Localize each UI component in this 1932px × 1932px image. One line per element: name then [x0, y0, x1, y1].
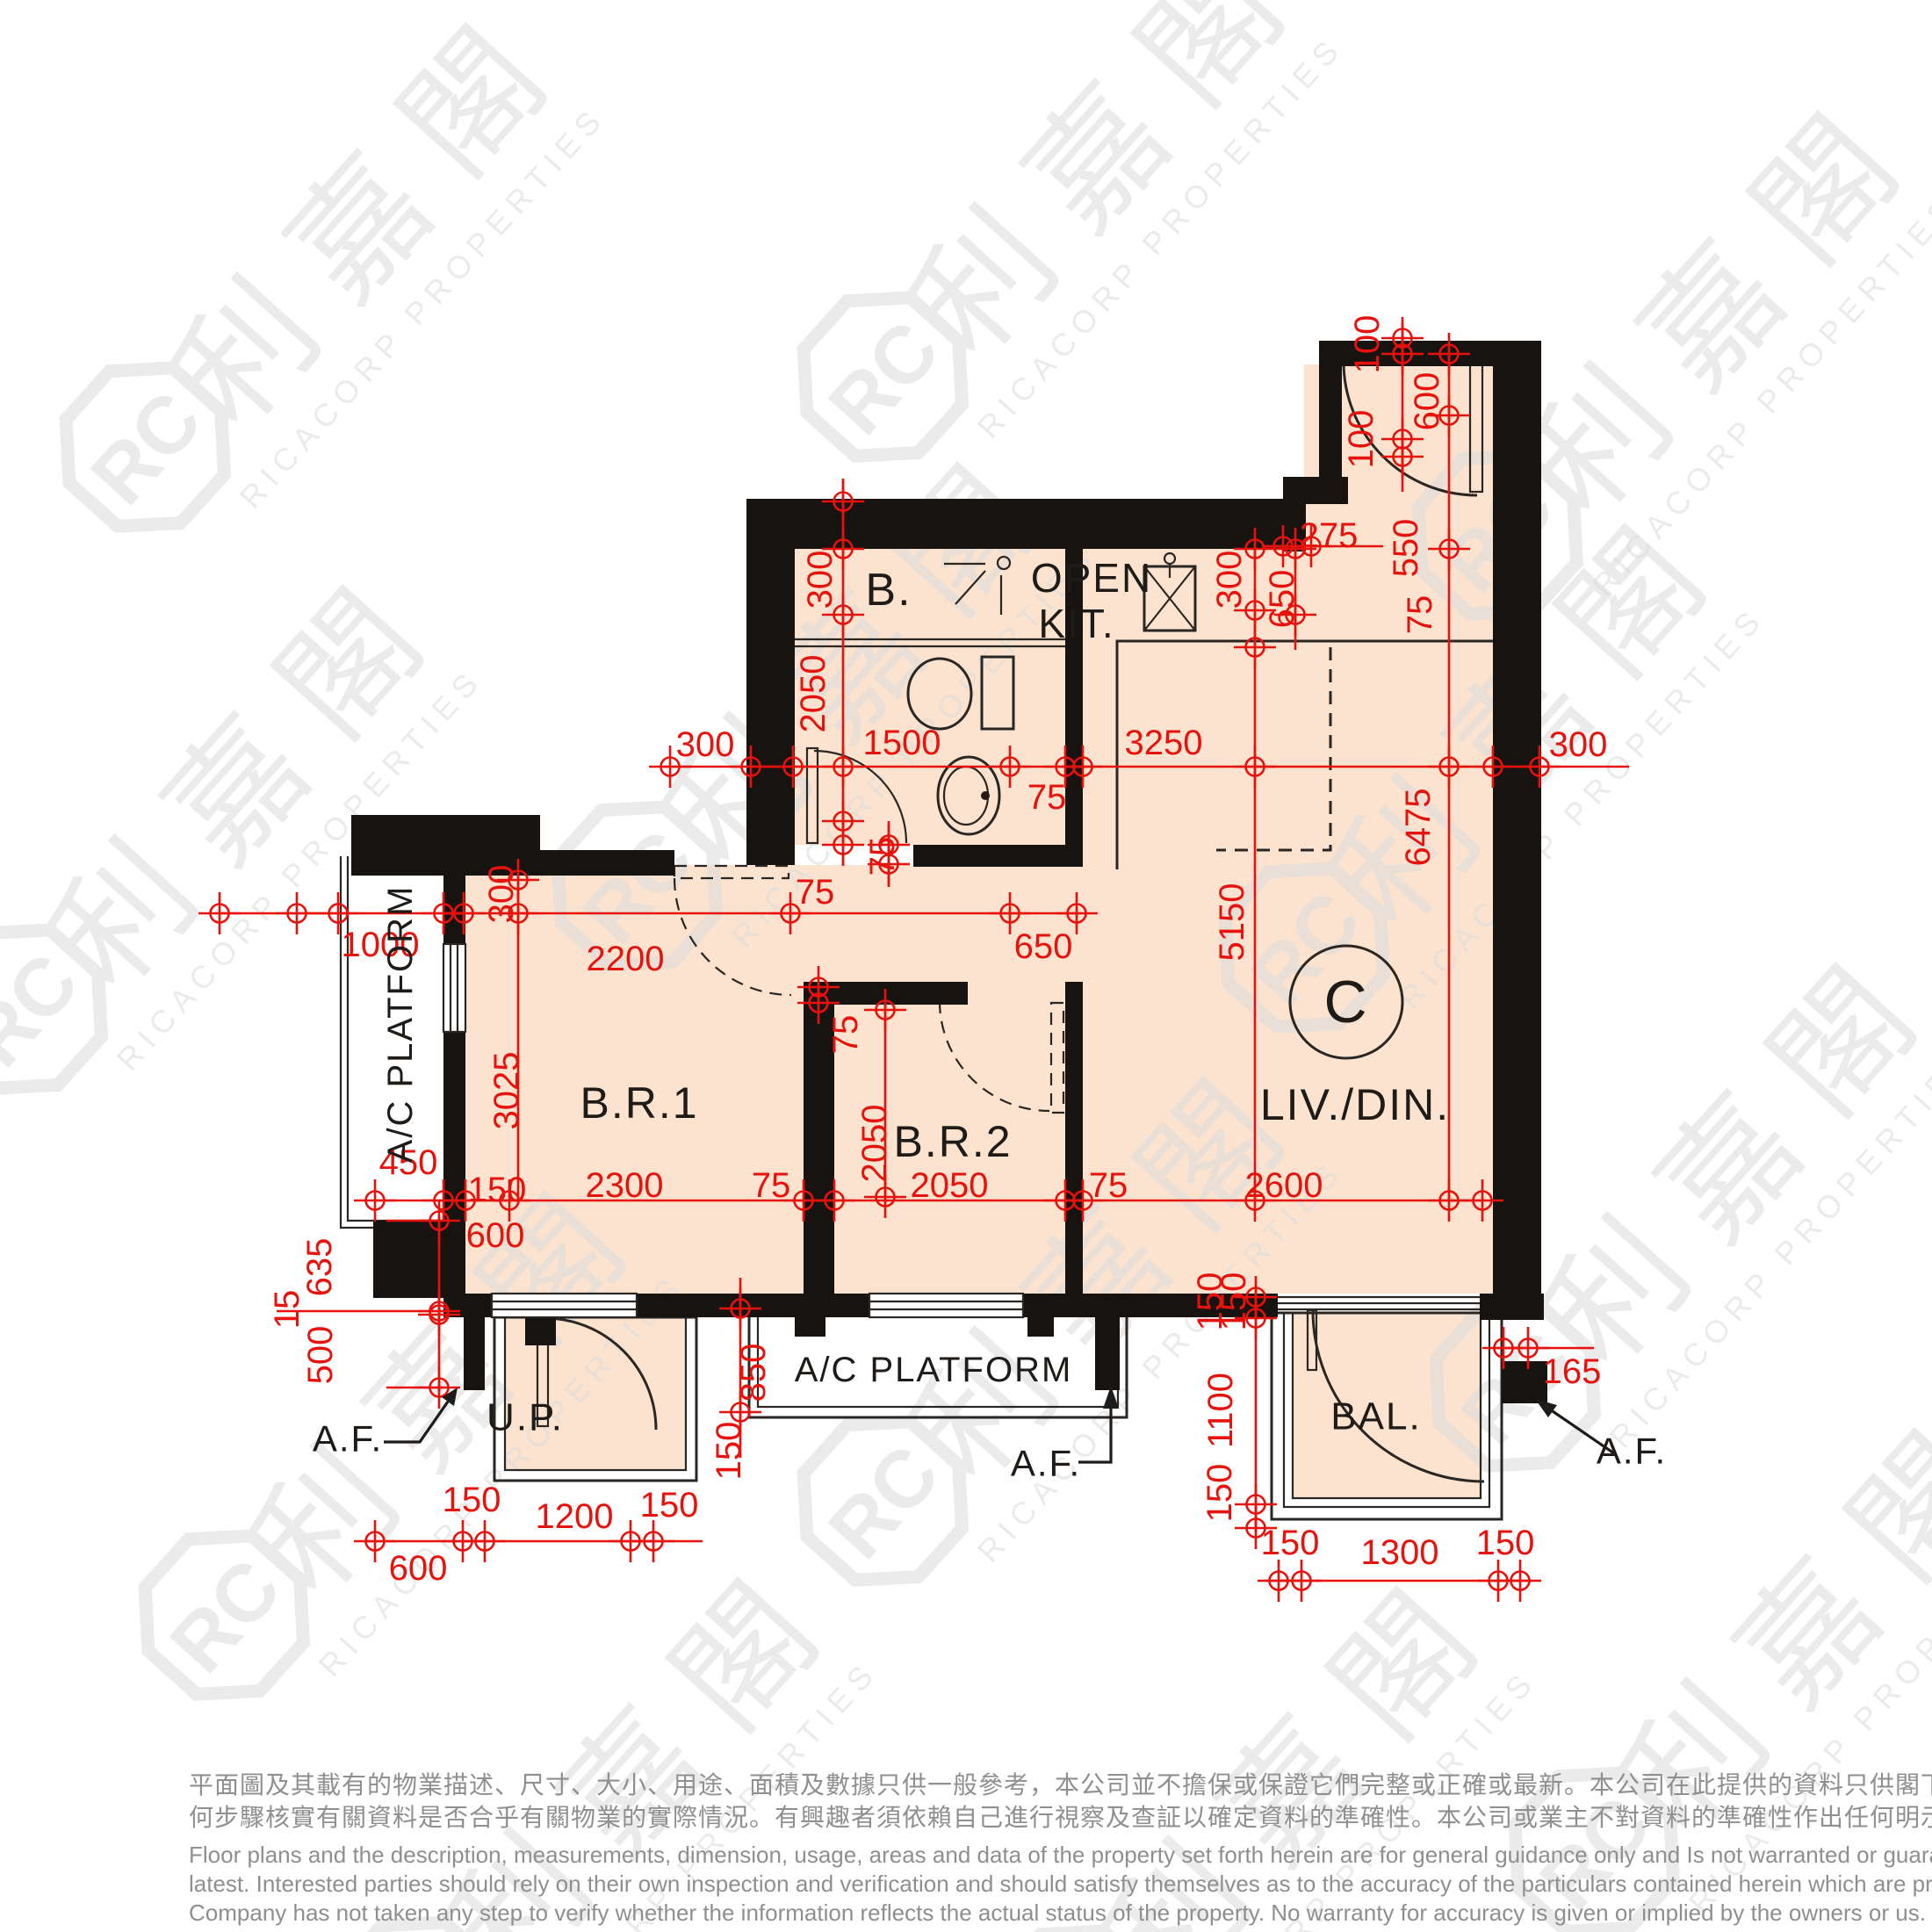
dimension-label: 75: [752, 1166, 791, 1205]
dimension-label: 650: [1263, 570, 1301, 629]
wall: [637, 1294, 869, 1317]
floor-plan-canvas: RC 利嘉閣 RICACORP PROPERTIES RC 利嘉閣 RICACO…: [0, 0, 1932, 1932]
dimension-label: 150: [710, 1422, 748, 1481]
dimension-label: 2300: [586, 1166, 664, 1205]
dimension-label: 550: [1387, 519, 1425, 578]
dimension-label: 75: [796, 873, 835, 912]
window-bedroom-1-side: [443, 944, 465, 1032]
wall: [913, 845, 1083, 867]
wall: [1065, 982, 1083, 1294]
wall-af-fin-right: [1502, 1361, 1547, 1403]
room-label-balcony: BAL.: [1330, 1395, 1421, 1438]
dimension-label: 150: [468, 1171, 527, 1209]
wall: [746, 499, 1283, 549]
disclaimer-en-line2: latest. Interested parties should rely o…: [189, 1871, 1932, 1897]
dimension-label: 150: [443, 1481, 501, 1519]
balcony-sill-lines: [1278, 1297, 1484, 1309]
room-label-bedroom-2: B.R.2: [893, 1117, 1012, 1166]
dimension-label: 3250: [1125, 724, 1203, 762]
dimension-label: 5150: [1213, 883, 1251, 962]
dimension-label: 2050: [855, 1105, 894, 1183]
dimension-label: 75: [826, 1015, 865, 1055]
wall: [1493, 341, 1541, 1304]
dimension-label: 6475: [1399, 789, 1438, 867]
wall-pier: [1027, 1294, 1054, 1337]
wall: [834, 982, 968, 1005]
dimension-label: 275: [1300, 516, 1359, 555]
dimension-label: 600: [1408, 372, 1446, 431]
dimension-label: 150: [640, 1486, 699, 1525]
dimension-label: 3025: [487, 1052, 526, 1130]
dimension-label: 2600: [1245, 1166, 1323, 1205]
wall: [746, 499, 795, 865]
dimension-label: 600: [466, 1216, 525, 1255]
room-label-open-kitchen-2: KIT.: [1038, 601, 1114, 646]
dimension-label: 15: [268, 1290, 306, 1330]
room-label-ac-platform-bottom: A/C PLATFORM: [795, 1351, 1073, 1389]
annotation-af-middle: A.F.: [1011, 1443, 1081, 1484]
dimension-label: 650: [1014, 927, 1073, 966]
disclaimer: 平面圖及其載有的物業描述、尺寸、大小、用途、面積及數據只供一般參考，本公司並不擔…: [189, 1771, 1932, 1926]
disclaimer-en-line3: Company has not taken any step to verify…: [189, 1900, 1926, 1926]
room-label-bathroom: B.: [865, 565, 912, 616]
dimension-label: 300: [482, 865, 521, 924]
dimension-label: 150: [1215, 1272, 1253, 1331]
dimension-label: 300: [1210, 551, 1249, 609]
dimension-label: 100: [1348, 315, 1387, 374]
dimension-label: 150: [1476, 1524, 1535, 1562]
wall: [1480, 1294, 1544, 1320]
dimension-label: 300: [801, 551, 840, 609]
annotation-af-right: A.F.: [1597, 1431, 1667, 1472]
dimension-label: 600: [389, 1549, 448, 1588]
dimension-label: 850: [734, 1344, 773, 1402]
window-bedroom-2: [869, 1294, 1023, 1317]
watermark-cjk-text: 利嘉閣: [886, 0, 1334, 381]
room-label-bedroom-1: B.R.1: [580, 1078, 698, 1128]
dimension-label: 300: [676, 725, 735, 764]
dimension-label: 100: [1342, 410, 1381, 469]
dimension-label: 75: [863, 837, 902, 876]
wall-af-fin-middle: [1095, 1298, 1120, 1390]
dimension-label: 2050: [911, 1166, 989, 1205]
disclaimer-en-line1: Floor plans and the description, measure…: [189, 1842, 1932, 1868]
dimension-label: 1300: [1361, 1533, 1439, 1572]
dimension-label: 1500: [863, 724, 941, 762]
dimension-label: 150: [1200, 1464, 1239, 1523]
disclaimer-zh-line1: 平面圖及其載有的物業描述、尺寸、大小、用途、面積及數據只供一般參考，本公司並不擔…: [189, 1771, 1932, 1799]
dimension-label: 165: [1543, 1352, 1602, 1391]
room-label-open-kitchen-1: OPEN: [1031, 555, 1152, 601]
wall-pier: [795, 1294, 825, 1337]
dimension-label: 2200: [587, 940, 665, 978]
wall-af-fin-left: [373, 1221, 464, 1298]
disclaimer-zh-line2: 何步驟核實有關資料是否合乎有關物業的實際情況。有興趣者須依賴自己進行視察及查証以…: [189, 1804, 1932, 1831]
dimension-label: 635: [300, 1238, 339, 1297]
dimension-label: 75: [1027, 778, 1067, 817]
room-label-ac-platform-left: A/C PLATFORM: [381, 885, 420, 1164]
wall: [464, 1294, 485, 1390]
dimension-label: 1100: [1201, 1373, 1240, 1448]
room-label-living-dining: LIV./DIN.: [1260, 1080, 1450, 1129]
window-bedroom-1: [492, 1294, 637, 1317]
dimension-label: 500: [301, 1326, 340, 1385]
unit-letter: C: [1323, 969, 1368, 1035]
dimension-label: 75: [1401, 595, 1439, 635]
dimension-label: 75: [1089, 1166, 1128, 1205]
annotation-af-left: A.F.: [313, 1418, 383, 1460]
dimension-label: 150: [1261, 1524, 1320, 1562]
wall: [1283, 477, 1348, 504]
watermark: RC 利嘉閣 RICACORP PROPERTIES: [774, 0, 1366, 522]
dimension-label: 2050: [794, 655, 833, 733]
room-label-utility-platform: U.P.: [487, 1396, 564, 1439]
dimension-label: 1200: [536, 1497, 614, 1536]
watermark: RC 利嘉閣 RICACORP PROPERTIES: [36, 0, 629, 592]
dimension-label: 300: [1549, 725, 1608, 764]
